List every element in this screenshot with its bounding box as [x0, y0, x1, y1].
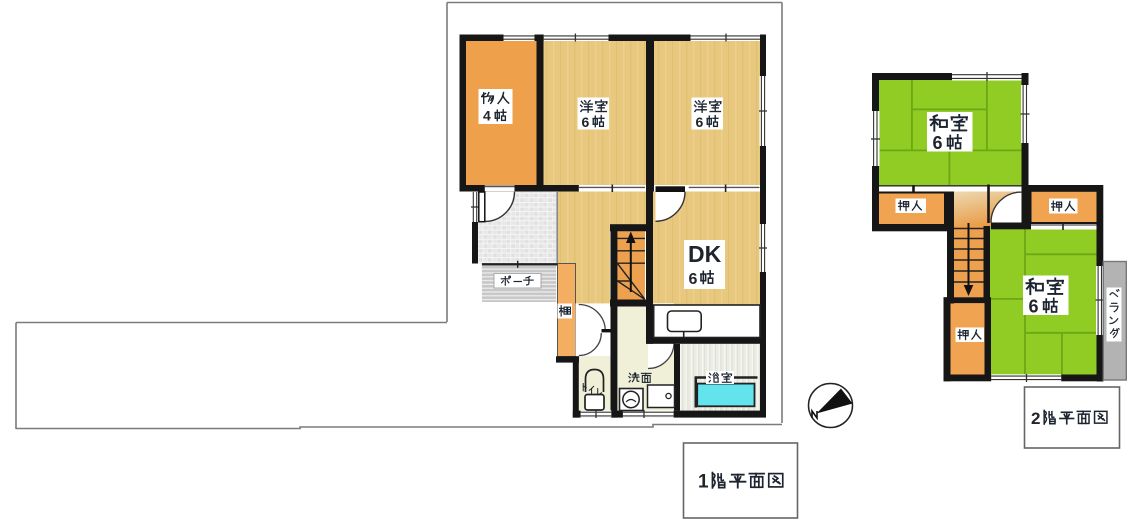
svg-text:6: 6 [689, 271, 698, 288]
svg-text:6: 6 [696, 114, 704, 130]
svg-text:DK: DK [688, 241, 722, 267]
svg-text:6: 6 [582, 114, 590, 130]
svg-text:6: 6 [1029, 297, 1039, 317]
svg-text:1: 1 [698, 472, 709, 493]
svg-text:6: 6 [933, 133, 943, 153]
svg-text:2: 2 [1031, 409, 1040, 428]
svg-text:4: 4 [483, 108, 491, 124]
